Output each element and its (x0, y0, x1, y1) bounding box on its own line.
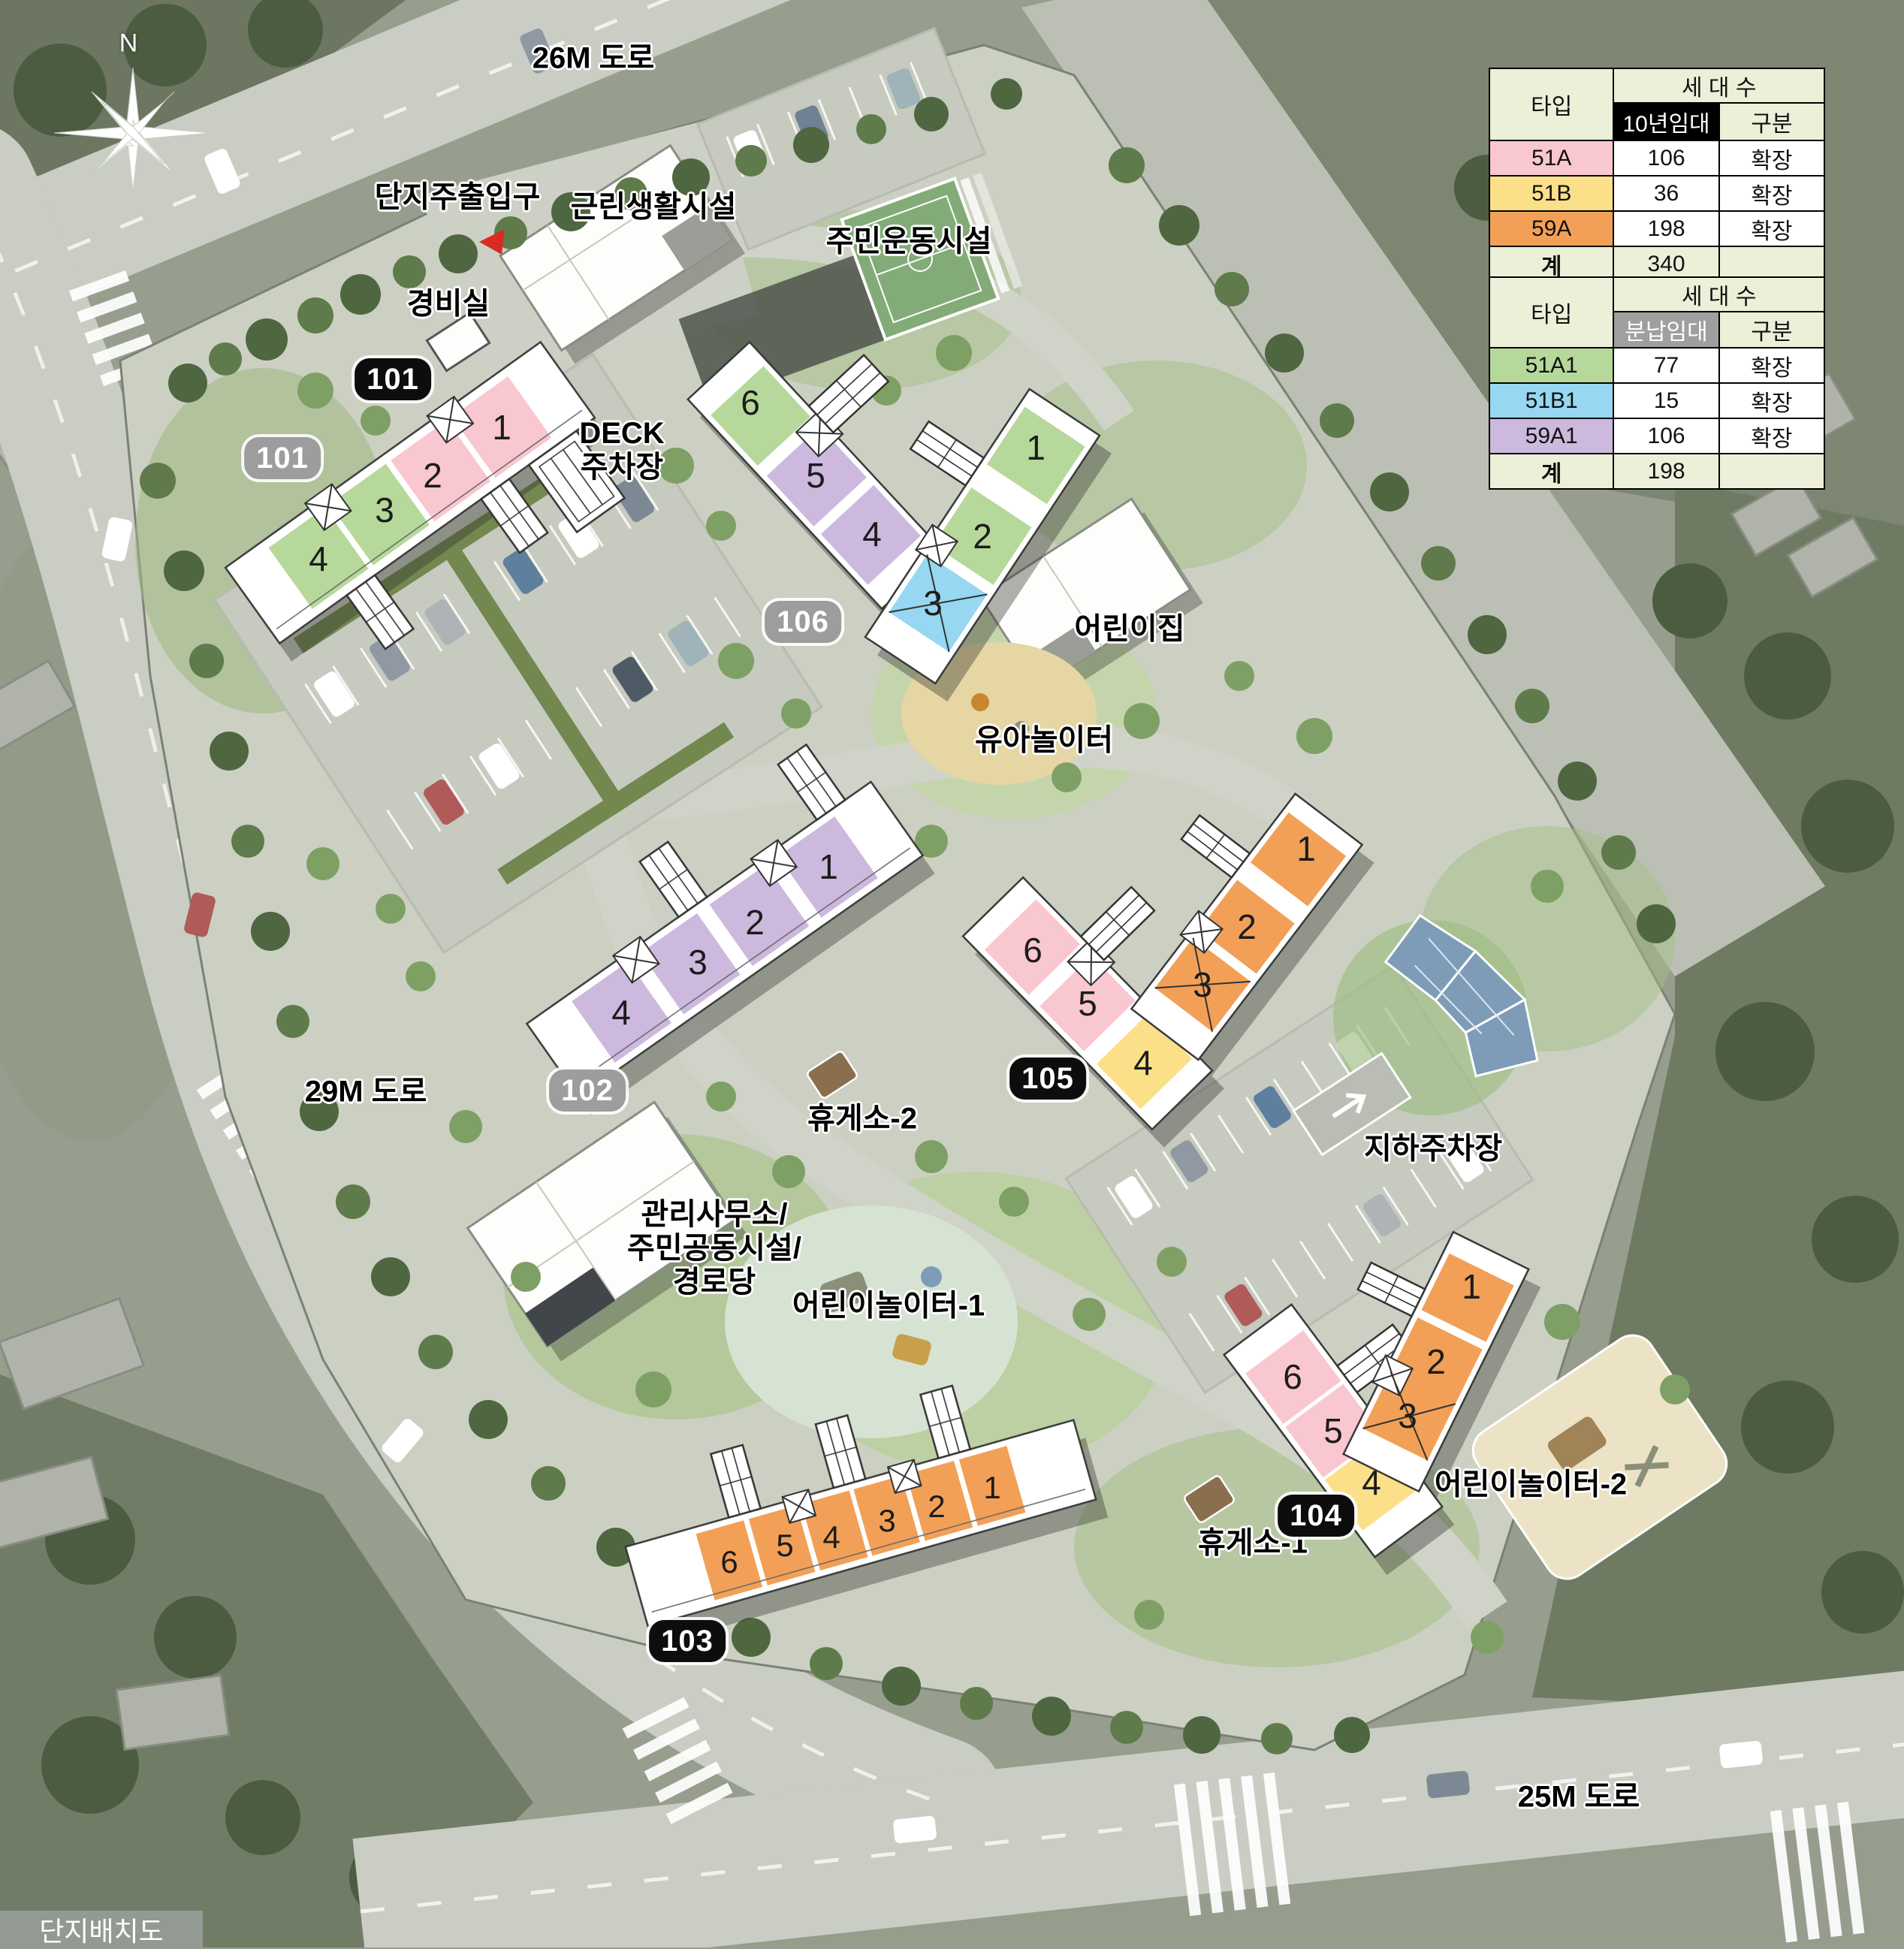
table-header-type: 타입 (1489, 68, 1613, 140)
count-cell: 77 (1613, 348, 1718, 383)
table-row: 59A 198 확장 (1489, 211, 1824, 246)
label-main-entrance: 단지주출입구 (375, 181, 541, 215)
total-label-cell: 계 (1489, 454, 1613, 489)
count-cell: 36 (1613, 176, 1718, 211)
division-cell: 확장 (1719, 418, 1824, 454)
page-title: 단지배치도 (0, 1911, 203, 1947)
badge-building-101-gray: 101 (244, 437, 321, 479)
label-children-playground-2: 어린이놀이터-2 (1435, 1468, 1627, 1502)
compass-north-label: N (119, 29, 138, 59)
table-row: 51B1 15 확장 (1489, 383, 1824, 418)
label-underground-parking: 지하주차장 (1364, 1133, 1502, 1166)
label-deck-parking: DECK 주차장 (579, 417, 664, 484)
label-rest-area-2: 휴게소-2 (807, 1103, 917, 1136)
division-cell: 확장 (1719, 211, 1824, 246)
road-label-25m: 25M 도로 (1518, 1781, 1640, 1815)
table-header-division: 구분 (1719, 312, 1824, 348)
label-sports-facility: 주민운동시설 (826, 225, 992, 259)
table-header-units: 세 대 수 (1613, 277, 1824, 312)
table-header-sub: 분납임대 (1613, 312, 1718, 348)
table-header-type: 타입 (1489, 277, 1613, 348)
label-management-office: 관리사무소/ 주민공동시설/ 경로당 (627, 1198, 801, 1299)
table-header-division: 구분 (1719, 103, 1824, 140)
total-count-cell: 198 (1613, 454, 1718, 489)
unit-count-table-rental: 타입 세 대 수 10년임대 구분 51A 106 확장 51B 36 확장 5… (1489, 68, 1825, 282)
type-cell: 51A1 (1489, 348, 1613, 383)
table-row: 51A1 77 확장 (1489, 348, 1824, 383)
division-cell: 확장 (1719, 383, 1824, 418)
table-total-row: 계 198 (1489, 454, 1824, 489)
table-row: 51B 36 확장 (1489, 176, 1824, 211)
count-cell: 106 (1613, 418, 1718, 454)
count-cell: 15 (1613, 383, 1718, 418)
badge-building-101: 101 (355, 358, 431, 400)
count-cell: 198 (1613, 211, 1718, 246)
road-label-26m: 26M 도로 (533, 42, 655, 76)
label-children-playground-1: 어린이놀이터-1 (792, 1290, 985, 1323)
badge-building-103: 103 (649, 1620, 726, 1662)
type-cell: 51B (1489, 176, 1613, 211)
type-cell: 51A (1489, 140, 1613, 176)
type-cell: 51B1 (1489, 383, 1613, 418)
badge-building-106: 106 (765, 601, 841, 643)
badge-building-104: 104 (1278, 1495, 1354, 1537)
division-cell: 확장 (1719, 348, 1824, 383)
badge-building-102: 102 (549, 1070, 626, 1112)
table-header-sub: 10년임대 (1613, 103, 1718, 140)
road-label-29m: 29M 도로 (305, 1076, 427, 1109)
table-header-units: 세 대 수 (1613, 68, 1824, 103)
division-cell: 확장 (1719, 176, 1824, 211)
table-row: 59A1 106 확장 (1489, 418, 1824, 454)
label-daycare: 어린이집 (1074, 613, 1184, 647)
table-row: 51A 106 확장 (1489, 140, 1824, 176)
label-toddler-playground: 유아놀이터 (975, 724, 1113, 758)
count-cell: 106 (1613, 140, 1718, 176)
total-division-cell (1719, 454, 1824, 489)
type-cell: 59A1 (1489, 418, 1613, 454)
badge-building-105: 105 (1009, 1057, 1086, 1100)
label-neighborhood-facility: 근린생활시설 (571, 191, 737, 225)
division-cell: 확장 (1719, 140, 1824, 176)
type-cell: 59A (1489, 211, 1613, 246)
unit-count-table-installment: 타입 세 대 수 분납임대 구분 51A1 77 확장 51B1 15 확장 5… (1489, 276, 1825, 490)
label-security-office: 경비실 (407, 288, 490, 321)
